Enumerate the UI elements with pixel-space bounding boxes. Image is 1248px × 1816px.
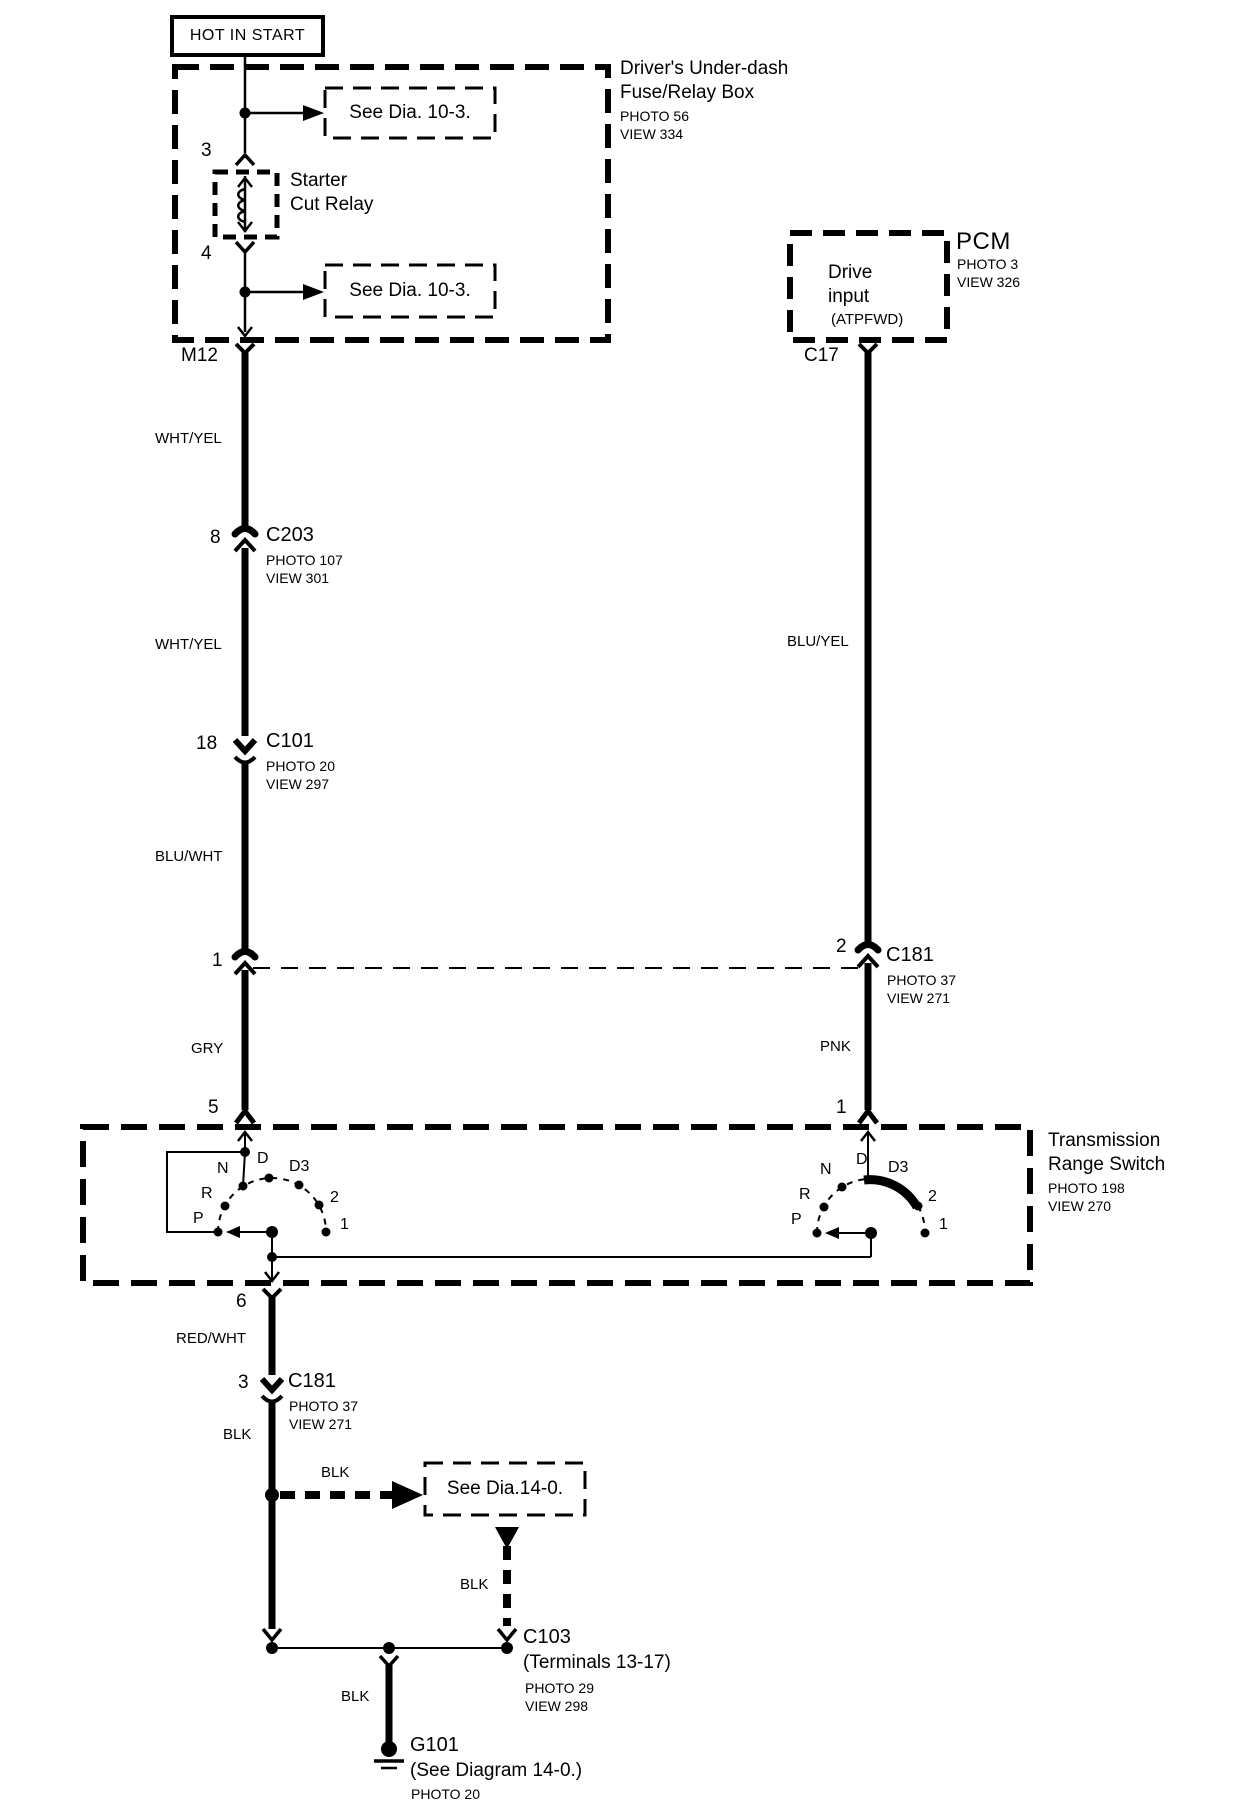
m12-label: M12 [181, 345, 218, 367]
wire-blu-yel-label: BLU/YEL [787, 633, 849, 650]
g101-note: (See Diagram 14-0.) [410, 1760, 582, 1782]
trs-right-pos-d3: D3 [888, 1159, 908, 1177]
c203-photo: PHOTO 107 [266, 552, 343, 568]
c103-view: VIEW 298 [525, 1698, 588, 1714]
c181-bottom-name: C181 [288, 1370, 336, 1393]
arrow-down-icon [495, 1527, 519, 1549]
c203-name: C203 [266, 524, 314, 547]
c181-left-pin-label: 1 [212, 950, 223, 972]
arrow-right-icon [303, 105, 324, 121]
pin-4-label: 4 [201, 243, 212, 265]
wire-wht-yel-label-2: WHT/YEL [155, 636, 222, 653]
arrow-right-icon [303, 284, 324, 300]
see-dia-bottom-label: See Dia. 10-3. [325, 265, 495, 317]
fuse-box-photo: PHOTO 56 [620, 108, 689, 124]
c203-pin-label: 8 [210, 527, 221, 549]
diagram-graphics [0, 0, 1248, 1816]
relay-name-line2: Cut Relay [290, 194, 373, 216]
connector-3-chevron-icon [236, 155, 254, 165]
c203-view: VIEW 301 [266, 570, 329, 586]
pin5-connector-icon [236, 1111, 254, 1123]
trs-left-pos-r: R [201, 1185, 213, 1203]
fuse-box-view: VIEW 334 [620, 126, 683, 142]
pin1-right-connector-icon [859, 1111, 877, 1123]
trs-left-pos-1: 1 [340, 1216, 349, 1234]
wire-pnk-label: PNK [820, 1038, 851, 1055]
c103-photo: PHOTO 29 [525, 1680, 594, 1696]
wire-blk-label-4: BLK [341, 1688, 369, 1705]
wiring-diagram-page: HOT IN START Driver's Under-dash Fuse/Re… [0, 0, 1248, 1816]
trs-right-pos-n: N [820, 1161, 832, 1179]
trs-right-pos-p: P [791, 1211, 802, 1229]
c103-name: C103 [523, 1626, 571, 1649]
trs-right-pos-r: R [799, 1186, 811, 1204]
c103-terminals: (Terminals 13-17) [523, 1652, 671, 1674]
pin-6-label: 6 [236, 1291, 247, 1313]
g101-name: G101 [410, 1734, 459, 1757]
wire-blk-label-3: BLK [460, 1576, 488, 1593]
pin-1-right-label: 1 [836, 1097, 847, 1119]
pin-5-label: 5 [208, 1097, 219, 1119]
wiper-arrow-icon [226, 1226, 240, 1238]
trs-right-switch [272, 1132, 930, 1257]
right-main-wire [858, 344, 878, 1123]
c181-right-cap-icon [858, 945, 878, 951]
trs-title-line2: Range Switch [1048, 1154, 1165, 1176]
wire-blk-label-2: BLK [321, 1464, 349, 1481]
c181-right-photo: PHOTO 37 [887, 972, 956, 988]
c181-bottom-view: VIEW 271 [289, 1416, 352, 1432]
bottom-ground-wiring [262, 1289, 519, 1768]
contact-segment [864, 1180, 917, 1207]
c181-bottom-chevron-icon [262, 1379, 282, 1390]
pin-3-label: 3 [201, 140, 212, 162]
c181-right-name: C181 [886, 944, 934, 967]
trs-title-line1: Transmission [1048, 1130, 1160, 1152]
c181-bottom-pin-label: 3 [238, 1372, 249, 1394]
rotary-arc [218, 1178, 326, 1232]
wire-gry-label: GRY [191, 1040, 223, 1057]
c181-bottom-cap-icon [262, 1396, 282, 1402]
c181-left-cap-icon [235, 952, 255, 958]
c101-pin-label: 18 [196, 733, 217, 755]
ground-icon [374, 1741, 404, 1768]
c17-label: C17 [804, 345, 839, 367]
see-dia-top-label: See Dia. 10-3. [325, 88, 495, 138]
trs-view: VIEW 270 [1048, 1198, 1111, 1214]
c101-connector-chevron-icon [235, 740, 255, 751]
trs-left-pos-2: 2 [330, 1189, 339, 1207]
hot-in-start-label: HOT IN START [172, 17, 323, 55]
trs-left-pos-n: N [217, 1160, 229, 1178]
c103-chevron-icon [498, 1629, 516, 1640]
pcm-input-line1: Drive [828, 262, 872, 284]
fuse-box-title-line1: Driver's Under-dash [620, 58, 788, 80]
c103-chevron-icon [263, 1629, 281, 1640]
wire-red-wht-label: RED/WHT [176, 1330, 246, 1347]
c101-connector-cap-icon [235, 757, 255, 763]
pcm-photo: PHOTO 3 [957, 256, 1018, 272]
pcm-name: PCM [956, 228, 1011, 256]
pin6-y-connector-icon [263, 1289, 281, 1298]
c101-name: C101 [266, 730, 314, 753]
trs-left-pos-d: D [257, 1150, 269, 1168]
c181-right-pin-label: 2 [836, 936, 847, 958]
wiper-arrow-icon [825, 1227, 839, 1239]
fuse-box-title-line2: Fuse/Relay Box [620, 82, 754, 104]
c181-bottom-photo: PHOTO 37 [289, 1398, 358, 1414]
c17-y-connector-icon [859, 344, 877, 353]
connector-4-y-icon [236, 242, 254, 252]
trs-right-pos-1: 1 [939, 1216, 948, 1234]
c181-right-view: VIEW 271 [887, 990, 950, 1006]
trs-left-pos-p: P [193, 1210, 204, 1228]
see-dia-14-label: See Dia.14-0. [425, 1463, 585, 1515]
wire-wht-yel-label-1: WHT/YEL [155, 430, 222, 447]
relay-name-line1: Starter [290, 170, 347, 192]
c203-connector-cap-icon [235, 529, 255, 535]
trs-left-pos-d3: D3 [289, 1158, 309, 1176]
arrow-right-icon [392, 1481, 423, 1509]
trs-photo: PHOTO 198 [1048, 1180, 1125, 1196]
pcm-input-line3: (ATPFWD) [831, 311, 903, 328]
m12-y-connector-icon [236, 344, 254, 353]
wire-blu-wht-label: BLU/WHT [155, 848, 223, 865]
trs-right-pos-d: D [856, 1151, 868, 1169]
left-main-wire [235, 344, 255, 1123]
c101-photo: PHOTO 20 [266, 758, 335, 774]
pcm-view: VIEW 326 [957, 274, 1020, 290]
g101-photo: PHOTO 20 [411, 1786, 480, 1802]
wire-blk-label-1: BLK [223, 1426, 251, 1443]
pcm-input-line2: input [828, 286, 869, 308]
trs-left-switch [167, 1132, 331, 1281]
c101-view: VIEW 297 [266, 776, 329, 792]
trs-right-pos-2: 2 [928, 1188, 937, 1206]
